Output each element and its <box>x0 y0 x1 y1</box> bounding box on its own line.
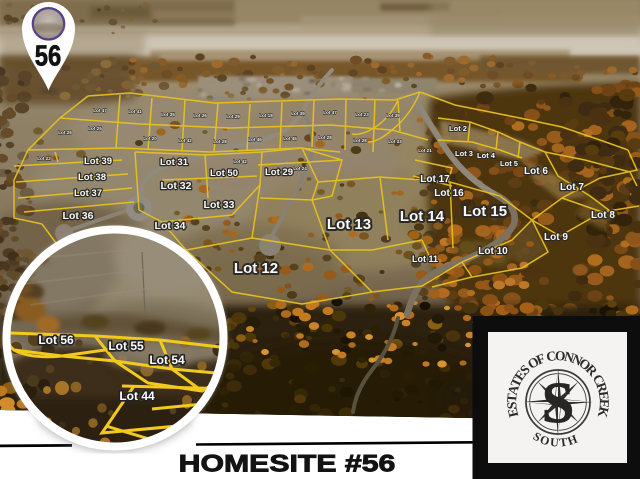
svg-text:Lot 56: Lot 56 <box>38 333 74 347</box>
svg-text:Lot 44: Lot 44 <box>119 389 155 403</box>
svg-text:S: S <box>542 370 574 435</box>
svg-text:Lot 54: Lot 54 <box>149 353 185 367</box>
svg-text:56: 56 <box>35 39 61 72</box>
svg-text:HOMESITE #56: HOMESITE #56 <box>179 450 396 477</box>
svg-text:Lot 55: Lot 55 <box>108 339 144 353</box>
